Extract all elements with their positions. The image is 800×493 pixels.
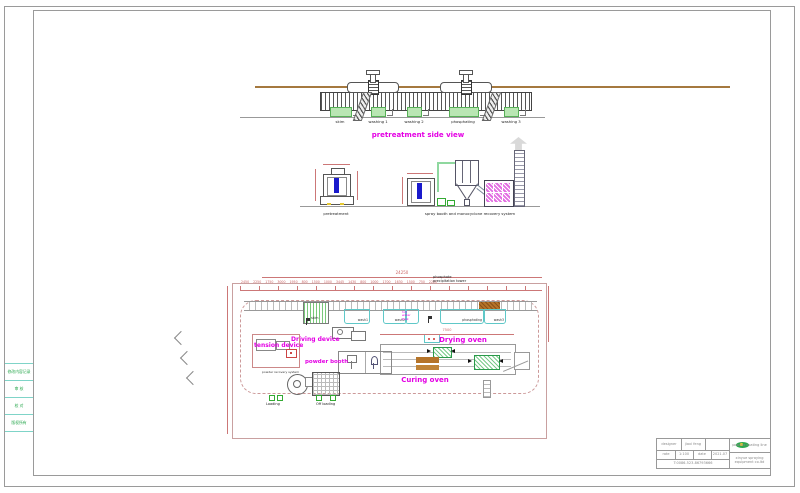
flow-arrow-icon [499,359,503,363]
workpiece-bar [334,178,339,193]
plan-tank-label: wash3 [494,318,504,322]
gun-stem [373,363,374,369]
filter-cartridge [486,183,493,192]
recovery-filter-grid [312,372,340,396]
tank-label: washing 2 [397,119,431,124]
dimension-line [323,164,350,165]
drawing-sheet: 修改内容记录 审 核 校 对 版权所有 skim washing 1 washi… [0,0,800,493]
phone-number: T:0086-523-86793666 [657,459,729,468]
top-view-title: pretreatment side view [358,131,478,139]
revision-text: 修改内容记录 [8,369,31,375]
plan-tank-wash1: wash1 [344,309,370,324]
cyclone-inner-circle [293,380,301,388]
rate-label: rate [657,450,675,459]
tank-step-icon [423,109,429,116]
curing-oven-label: Curing oven [395,376,455,384]
dimension-line [315,169,316,201]
side-dimension-line [227,286,228,434]
section-flag-icon [306,318,310,321]
oven-dimension-value: 7500 [430,328,464,332]
dimension-ticks [240,286,542,291]
designer-label: designer [657,439,681,450]
hanger-icon [347,355,357,363]
stack-cap [459,70,473,75]
tank-skim [330,107,352,117]
rate-value: 1:100 [675,450,693,459]
tank-label: washing 3 [494,119,528,124]
tank-washing2 [407,107,422,117]
pump-box [447,200,455,206]
exhaust-fan-unit [347,70,399,94]
filter-cartridge [503,193,510,202]
revision-text: 审 核 [15,386,24,392]
overall-dimension-value: 24250 [380,270,424,275]
cyclone-vane [470,161,471,183]
workpiece-bar [417,183,422,199]
filter-cartridge [494,183,501,192]
marker-yellow [340,203,344,205]
tank-label: washing 1 [361,119,395,124]
station-marker [269,395,275,401]
motor-circle [337,329,343,335]
drying-oven-label: Drying oven [425,336,501,344]
overall-dimension-line [262,277,542,278]
revision-row: 审 核 [5,380,33,397]
plan-tank-wash3: wash3 [484,309,506,324]
tank-step-icon [387,109,393,116]
flow-arrow-icon [427,349,431,353]
powder-booth-label: powder booth [305,359,348,365]
side-dimension-line [548,286,549,342]
designer-value: jiaxi feng [681,439,705,450]
filter-cartridges [486,183,510,202]
exhaust-fan-unit [440,70,492,94]
burner-block [416,357,439,363]
dimension-chain-values: 2450 2250 1750 3000 1950 800 1500 1000 3… [241,280,541,284]
date-label: date [693,450,711,459]
dimension-line [407,173,433,174]
elevation-left-label: pretreatment [312,211,360,216]
powder-recovery-label: powder recovery system [262,370,299,374]
recovery-duct [437,162,439,192]
exhaust-stack-hatched [514,150,525,207]
tank-washing1 [371,107,386,117]
plan-note: phosphate precipitation tower [433,275,467,283]
tank-phosphating [449,107,479,117]
booth-divider [365,352,366,373]
oven-fan-unit [474,355,500,370]
title-block: designer jiaxi feng rate 1:100 date 2021… [656,438,771,469]
monorail-line [255,86,730,88]
hot-water-label: hot water tank [402,311,416,321]
product-title: powder coating line [729,439,770,452]
pump-box [437,198,446,206]
plan-tank-phosphating: phosphating [440,309,484,324]
flow-arrow-icon [451,349,455,353]
date-value: 2021.07 [711,450,729,459]
loading-label: Loading [266,402,280,406]
tension-marker [286,349,297,358]
station-marker [277,395,283,401]
plan-tank-label: wash1 [358,318,368,322]
heated-section [479,302,500,309]
revision-row: 校 对 [5,397,33,414]
title-block-line [705,439,706,450]
tank-label: skim [323,119,357,124]
station-marker [330,395,336,401]
dimension-line [402,177,403,204]
ground-line-top [240,117,545,118]
tank-label: phosphating [446,119,480,124]
station-marker [316,395,322,401]
tension-device-label: tension device [254,342,303,349]
driving-device-box [351,331,366,341]
plan-tank-label: phosphating [462,318,482,322]
stack-cap [366,70,380,75]
burner-block [416,365,439,370]
cyclone-vane [462,161,463,183]
section-flag-icon [428,316,432,319]
cyclone-outlet [464,199,470,206]
cyclone-body [455,160,479,186]
revision-row: 修改内容记录 [5,363,33,380]
tank-step-icon [520,109,526,116]
filter-cartridge [503,183,510,192]
hanger-stem [351,361,352,369]
dimension-line [357,171,358,200]
oven-ladder [483,380,491,398]
oven-dimension-line [380,334,514,335]
company-name: xinyue spraying equipment co.ltd [729,452,770,468]
filter-cartridge [494,193,501,202]
marker-dot [290,352,292,354]
tension-device-box [252,334,300,368]
revision-table: 修改内容记录 审 核 校 对 版权所有 [5,363,33,432]
revision-text: 版权所有 [11,420,26,426]
revision-text: 校 对 [15,403,24,409]
marker-yellow [327,203,331,205]
offloading-label: Off loading [316,402,335,406]
revision-row: 版权所有 [5,414,33,432]
elevation-right-label: spray booth and monocyclone recovery sys… [400,211,540,216]
pretreat-booth-base [320,196,354,205]
filter-cartridge [486,193,493,202]
flow-arrow-icon [468,359,472,363]
tank-washing3 [504,107,519,117]
plan-tank-label: skim [311,316,319,320]
